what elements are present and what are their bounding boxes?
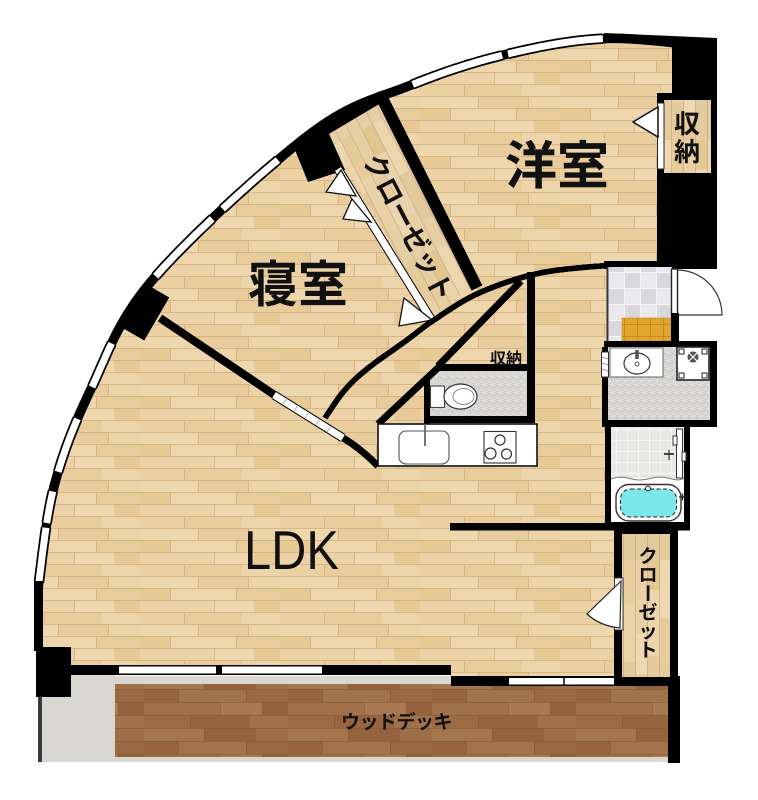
svg-text:LDK: LDK — [244, 519, 339, 581]
